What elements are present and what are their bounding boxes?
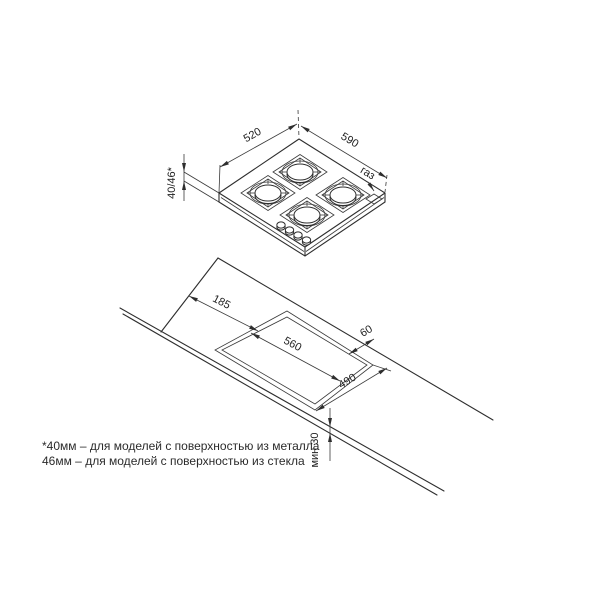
- cutout-outline-outer: [215, 311, 373, 410]
- hob-top-face: [219, 139, 385, 247]
- hob-height-dimension-label: 40/46*: [166, 166, 178, 199]
- installation-diagram-page: 520 590 40/46* газ: [0, 0, 600, 600]
- countertop-left-edge: [161, 258, 218, 332]
- dimension-cutout-depth: 490: [316, 365, 391, 411]
- rear-gap-label: 60: [358, 323, 375, 340]
- footnote-line2: 46мм – для моделей с поверхностью из сте…: [42, 454, 305, 468]
- hob-width-dimension-label: 590: [339, 131, 361, 151]
- hob-isometric-view: 520 590 40/46* газ: [166, 110, 387, 256]
- hob-depth-dimension-label: 520: [242, 126, 264, 145]
- cutout-depth-label: 490: [336, 372, 358, 392]
- dimension-rear-gap: 60: [349, 323, 375, 354]
- footnote-line1: *40мм – для моделей с поверхностью из ме…: [42, 439, 320, 453]
- footnote: *40мм – для моделей с поверхностью из ме…: [42, 439, 320, 468]
- installation-diagram: 520 590 40/46* газ: [0, 0, 600, 600]
- dimension-cutout-width: 560: [251, 333, 340, 381]
- dimension-hob-height: 40/46*: [166, 154, 219, 202]
- cutout-outline-inner: [222, 317, 367, 404]
- countertop-back-edge: [218, 258, 493, 420]
- dimension-cutout-left-offset: 185: [189, 293, 258, 331]
